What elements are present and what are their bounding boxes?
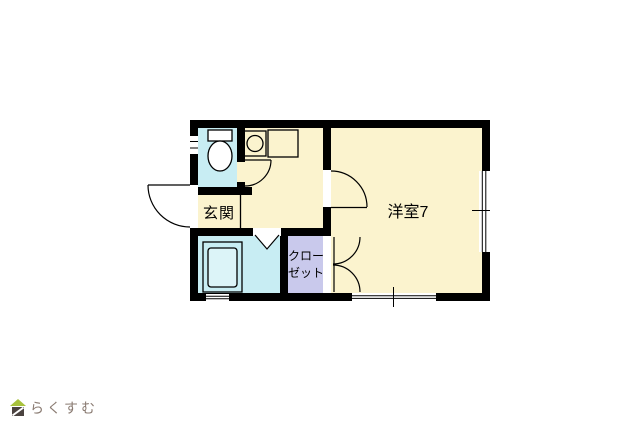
floorplan-image: 玄関 洋室7 クロー ゼット らくすむ (0, 0, 640, 425)
closet-label-line1: クロー (288, 249, 324, 263)
floorplan-svg: 玄関 洋室7 クロー ゼット (0, 0, 640, 425)
wall-outer-bottom (190, 293, 490, 301)
western-room-label: 洋室7 (388, 203, 429, 221)
logo-text: らくすむ (30, 398, 98, 418)
toilet-bowl-icon (208, 141, 232, 171)
house-icon (10, 399, 26, 417)
wall-bathroom-right (280, 236, 288, 293)
wall-center-top (323, 120, 331, 170)
closet-door-opening (323, 236, 331, 293)
wall-toilet-bottom (190, 187, 252, 195)
toilet-tank-icon (208, 130, 232, 141)
entrance-door-arc (148, 185, 190, 227)
wall-outer-top (190, 120, 490, 128)
wall-center-mid (323, 207, 331, 236)
bathtub-inner-icon (208, 248, 237, 287)
entrance-label: 玄関 (203, 205, 235, 222)
bathroom-small-window (206, 294, 229, 301)
wall-mid-left (190, 228, 253, 236)
closet-room (288, 236, 323, 293)
room-door-opening (323, 170, 331, 207)
bathroom-door-opening (253, 228, 281, 236)
rakusumu-logo: らくすむ (10, 398, 98, 418)
entrance-door-opening (190, 185, 198, 228)
house-roof (10, 399, 26, 406)
closet-label-line2: ゼット (288, 266, 324, 280)
toilet-window-opening (190, 136, 198, 154)
right-window (479, 171, 490, 252)
